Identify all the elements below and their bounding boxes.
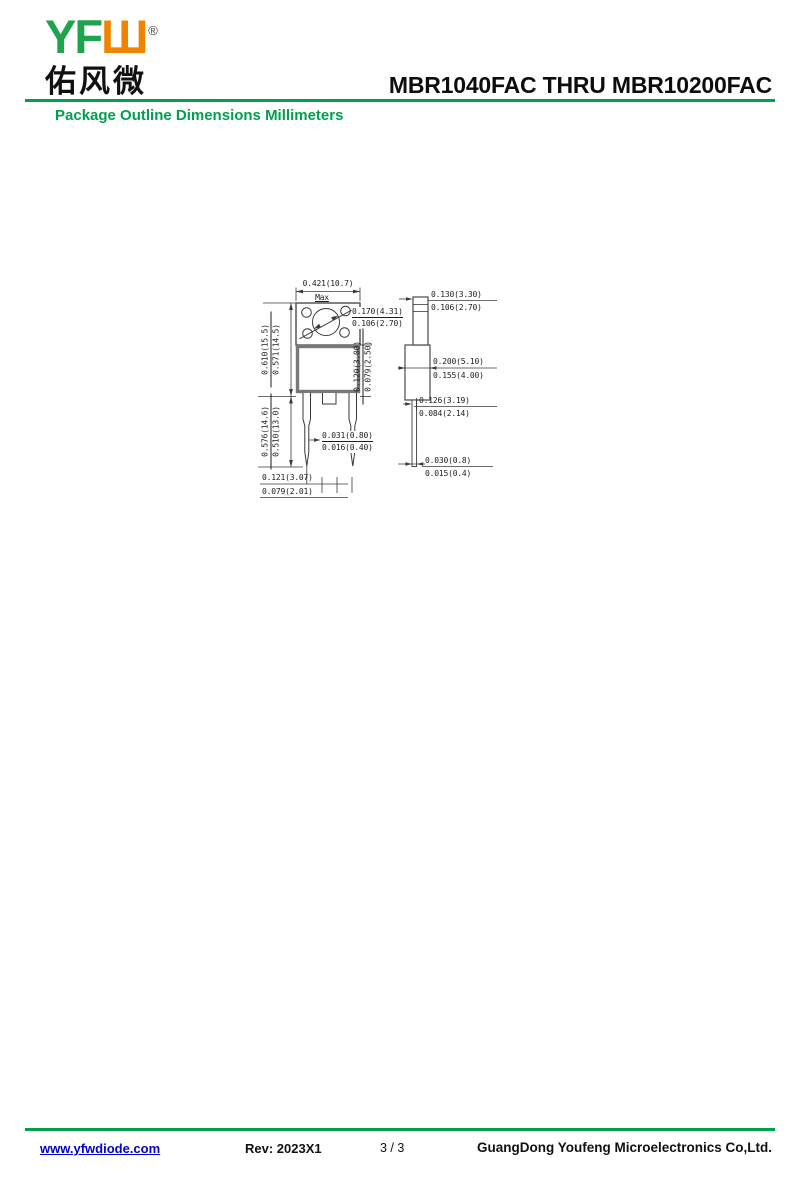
side-body-thickness-lower: 0.155(4.00) xyxy=(433,371,484,381)
dimension-lower-limit: 0.571(14.5) xyxy=(271,311,281,387)
front-lead-pitch-upper: 0.121(3.07) xyxy=(262,473,313,483)
side-lead-offset-lower: 0.084(2.14) xyxy=(419,409,470,419)
dimension-upper-limit: 0.610(15.5) xyxy=(260,311,271,387)
revision-label: Rev: 2023X1 xyxy=(245,1141,322,1156)
dimension-upper-limit: 0.120(3.00) xyxy=(353,329,364,405)
dimension-lower-limit: 0.079(2.50) xyxy=(364,329,374,405)
front-lead-width-dimension: 0.031(0.80) 0.016(0.40) xyxy=(322,431,373,453)
side-lead-offset-upper: 0.126(3.19) xyxy=(419,396,470,406)
front-width-max-dimension: 0.421(10.7) xyxy=(294,279,362,289)
front-hole-diameter-dimension: 0.170(4.31) 0.106(2.70) xyxy=(352,307,403,329)
dimension-upper-limit: 0.576(14.6) xyxy=(260,393,271,469)
front-lead-pitch-lower: 0.079(2.01) xyxy=(262,487,313,497)
footer-divider xyxy=(25,1128,775,1131)
package-outline-drawing xyxy=(0,0,800,1193)
front-width-max-note: Max xyxy=(294,293,350,303)
datasheet-page: YFШ® 佑风微 MBR1040FAC THRU MBR10200FAC Pac… xyxy=(0,0,800,1193)
dimension-upper-limit: 0.170(4.31) xyxy=(352,307,403,319)
side-tab-thickness-upper: 0.130(3.30) xyxy=(431,290,482,300)
company-name: GuangDong Youfeng Microelectronics Co,Lt… xyxy=(477,1140,772,1155)
page-number: 3 / 3 xyxy=(380,1141,404,1155)
website-link[interactable]: www.yfwdiode.com xyxy=(40,1141,160,1156)
side-body-thickness-upper: 0.200(5.10) xyxy=(433,357,484,367)
dimension-lower-limit: 0.016(0.40) xyxy=(322,442,373,453)
front-lead-length-dimension: 0.576(14.6) 0.510(13.0) xyxy=(260,393,281,469)
front-body-lower-height-dimension: 0.120(3.00) 0.079(2.50) xyxy=(353,329,374,405)
side-view xyxy=(398,297,497,467)
dimension-lower-limit: 0.106(2.70) xyxy=(352,318,403,329)
dimension-lower-limit: 0.510(13.0) xyxy=(271,393,281,469)
front-body-height-dimension: 0.610(15.5) 0.571(14.5) xyxy=(260,311,281,387)
side-lead-thickness-upper: 0.030(0.8) xyxy=(425,456,471,466)
dimension-upper-limit: 0.031(0.80) xyxy=(322,431,373,443)
side-lead-thickness-lower: 0.015(0.4) xyxy=(425,469,471,479)
side-tab-thickness-lower: 0.106(2.70) xyxy=(431,303,482,313)
